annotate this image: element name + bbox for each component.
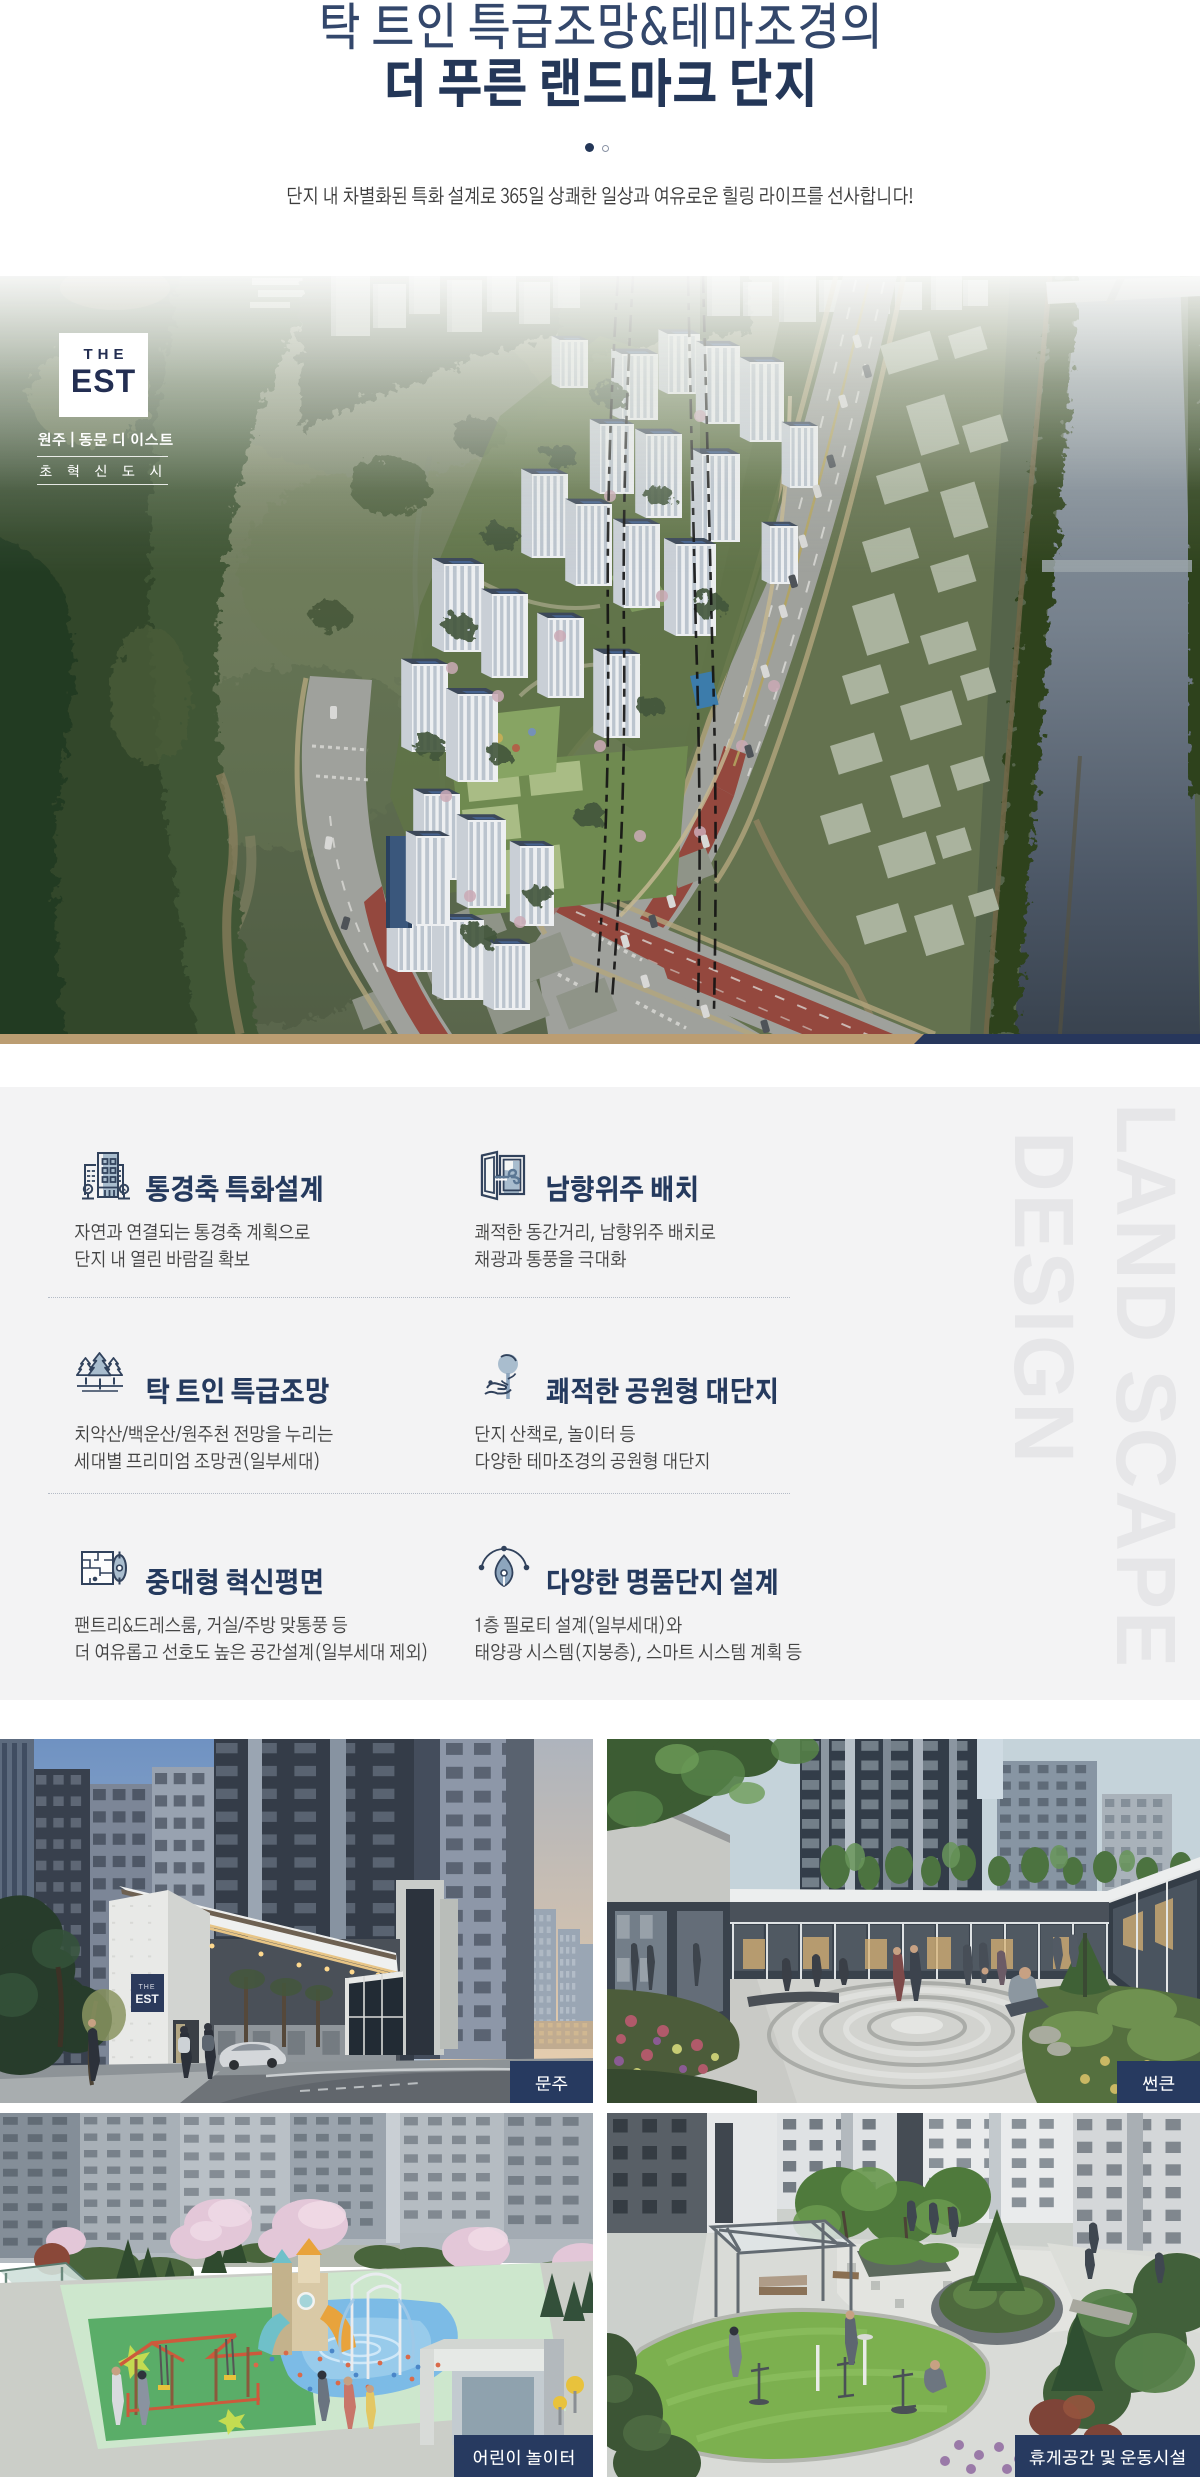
svg-text:EST: EST (135, 1992, 159, 2006)
svg-text:THE: THE (139, 1984, 156, 1991)
